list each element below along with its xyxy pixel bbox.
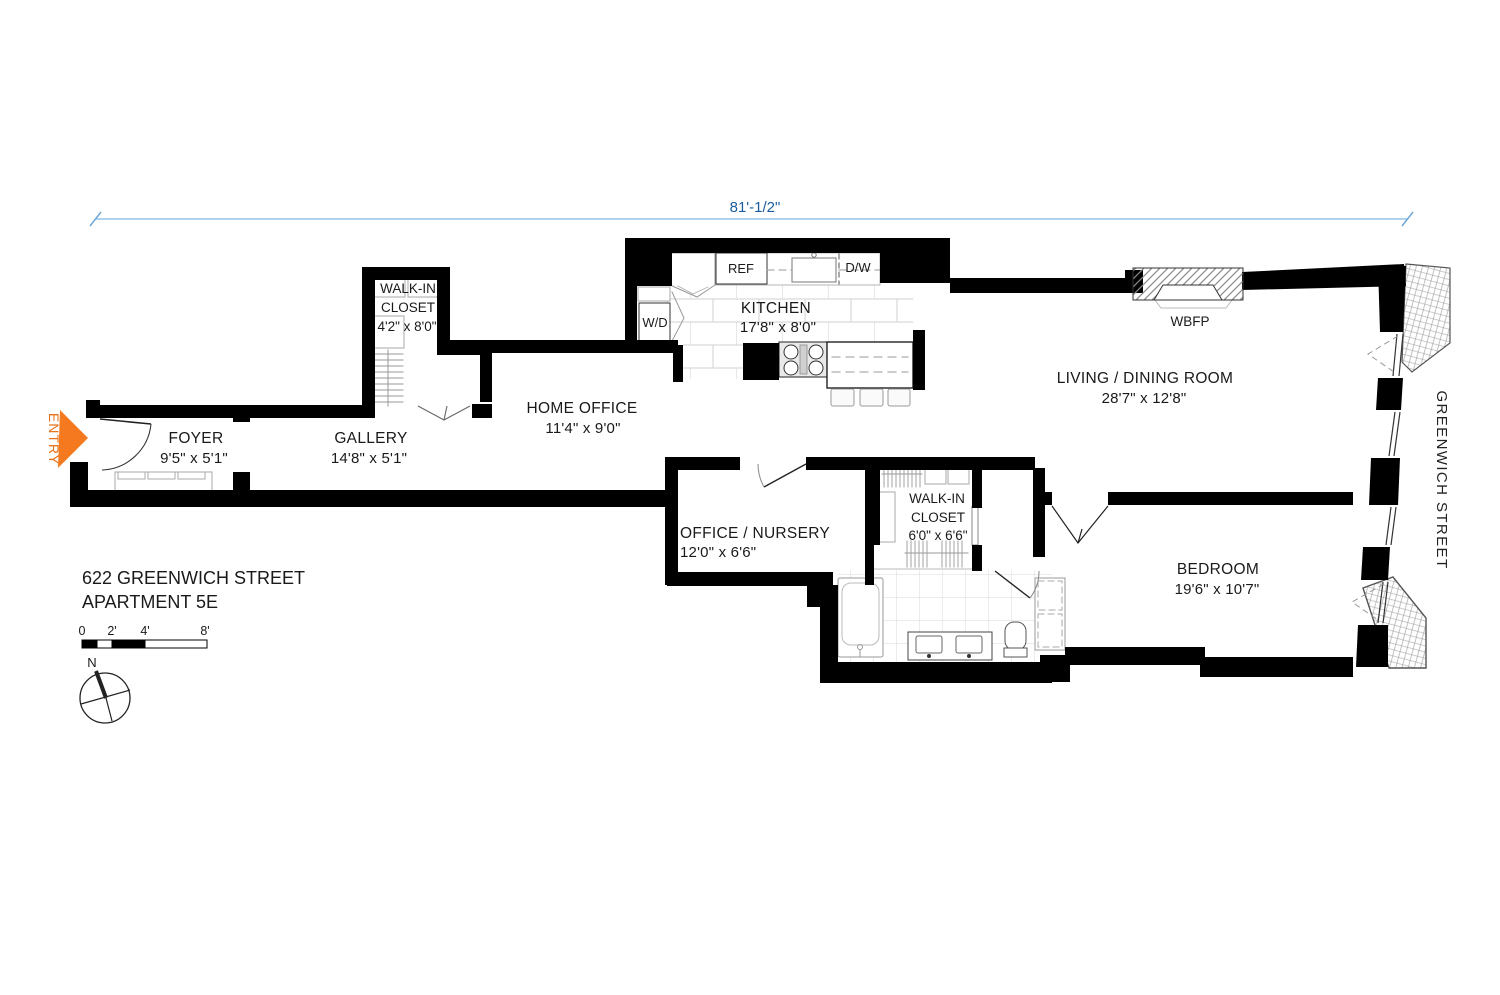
plan-title-line1: 622 GREENWICH STREET: [82, 568, 305, 588]
foyer-bench: [115, 472, 212, 492]
wbfp-label: WBFP: [1171, 314, 1210, 329]
floor-plan-drawing: 81'-1/2" ENTRY FOYER 9'5" x 5'1" GALLERY…: [0, 0, 1500, 995]
wd-shelf: [638, 287, 670, 301]
window: [1389, 412, 1400, 456]
fireplace-hearth: [1155, 300, 1232, 308]
bedroom-label: BEDROOM: [1177, 561, 1259, 578]
compass: N: [80, 655, 130, 723]
fireplace: [1133, 268, 1243, 300]
office-nursery-dims: 12'0" x 6'6": [680, 544, 756, 561]
closet-right-dims: 6'0" x 6'6": [908, 528, 967, 543]
closet-left-dims: 4'2" x 8'0": [377, 319, 436, 334]
street-label: GREENWICH STREET: [1433, 390, 1450, 569]
closet-door-leaf: [972, 506, 978, 545]
scale-bar: 0 2' 4' 8': [79, 624, 210, 648]
foyer-label: FOYER: [169, 430, 224, 447]
bedroom-dims: 19'6" x 10'7": [1175, 581, 1260, 598]
closet-left-label-1: WALK-IN: [380, 281, 436, 296]
stool: [831, 389, 854, 406]
floor-plan-page: 81'-1/2" ENTRY FOYER 9'5" x 5'1" GALLERY…: [0, 0, 1500, 995]
compass-north-label: N: [87, 655, 96, 670]
kitchen-tile-floor-south: [683, 343, 743, 379]
entry-door: [100, 419, 151, 470]
closet-left-hangers: [374, 350, 403, 406]
title-block: 622 GREENWICH STREET APARTMENT 5E: [82, 568, 305, 612]
scale-2ft: 2': [107, 624, 116, 638]
office-door: [758, 464, 806, 487]
gallery-dims: 14'8" x 5'1": [331, 450, 407, 467]
kitchen-sink: [792, 258, 836, 282]
foyer-dims: 9'5" x 5'1": [160, 450, 228, 467]
entry-marker: ENTRY: [46, 410, 88, 468]
vanity-sink: [956, 636, 982, 653]
living-dining-label: LIVING / DINING ROOM: [1057, 370, 1234, 387]
kitchen-dims: 17'8" x 8'0": [740, 319, 816, 336]
kitchen-label: KITCHEN: [741, 300, 811, 317]
shower: [1035, 578, 1065, 650]
stool: [888, 389, 910, 406]
stove: [779, 342, 827, 377]
window: [1393, 334, 1403, 376]
dimension-line: 81'-1/2": [90, 199, 1413, 226]
scale-8ft: 8': [200, 624, 209, 638]
bay-grate-top: [1402, 264, 1450, 372]
vanity-sink: [916, 636, 942, 653]
dw-label: D/W: [845, 260, 871, 275]
closet-right-label-2: CLOSET: [911, 510, 965, 525]
home-office-dims: 11'4" x 9'0": [545, 420, 620, 437]
kitchen-island: [827, 342, 913, 406]
living-dining-dims: 28'7" x 12'8": [1102, 390, 1187, 407]
stool: [860, 389, 883, 406]
closet-left-label-2: CLOSET: [381, 300, 435, 315]
wd-label: W/D: [642, 315, 667, 330]
bedroom-door: [1052, 506, 1108, 543]
toilet: [1004, 622, 1027, 657]
closet-right-label-1: WALK-IN: [909, 491, 965, 506]
ref-label: REF: [728, 261, 754, 276]
scale-4ft: 4': [140, 624, 149, 638]
entry-label: ENTRY: [46, 413, 62, 465]
home-office-label: HOME OFFICE: [527, 400, 638, 417]
overall-width-dimension: 81'-1/2": [730, 199, 781, 216]
window: [1386, 507, 1396, 545]
office-nursery-label: OFFICE / NURSERY: [680, 525, 830, 542]
plan-title-line2: APARTMENT 5E: [82, 592, 218, 612]
gallery-label: GALLERY: [334, 430, 407, 447]
gallery-door: [418, 406, 470, 420]
scale-0: 0: [79, 624, 86, 638]
